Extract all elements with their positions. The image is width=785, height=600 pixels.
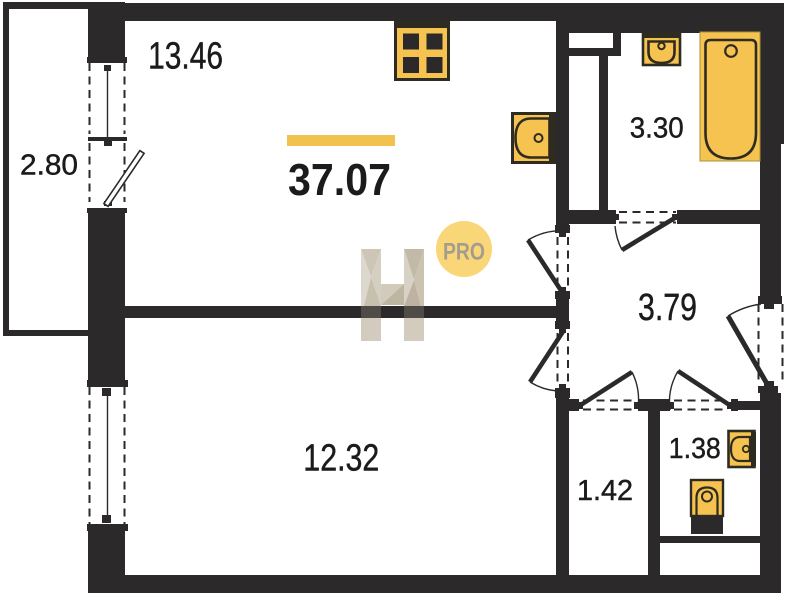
svg-text:PRO: PRO bbox=[443, 239, 485, 266]
svg-text:37.07: 37.07 bbox=[288, 154, 391, 205]
svg-text:12.32: 12.32 bbox=[303, 438, 379, 480]
svg-text:13.46: 13.46 bbox=[148, 36, 223, 78]
svg-text:2.80: 2.80 bbox=[20, 150, 78, 182]
svg-text:1.38: 1.38 bbox=[669, 433, 721, 465]
svg-text:3.30: 3.30 bbox=[630, 113, 684, 145]
svg-text:3.79: 3.79 bbox=[638, 287, 697, 329]
svg-text:1.42: 1.42 bbox=[577, 475, 633, 507]
